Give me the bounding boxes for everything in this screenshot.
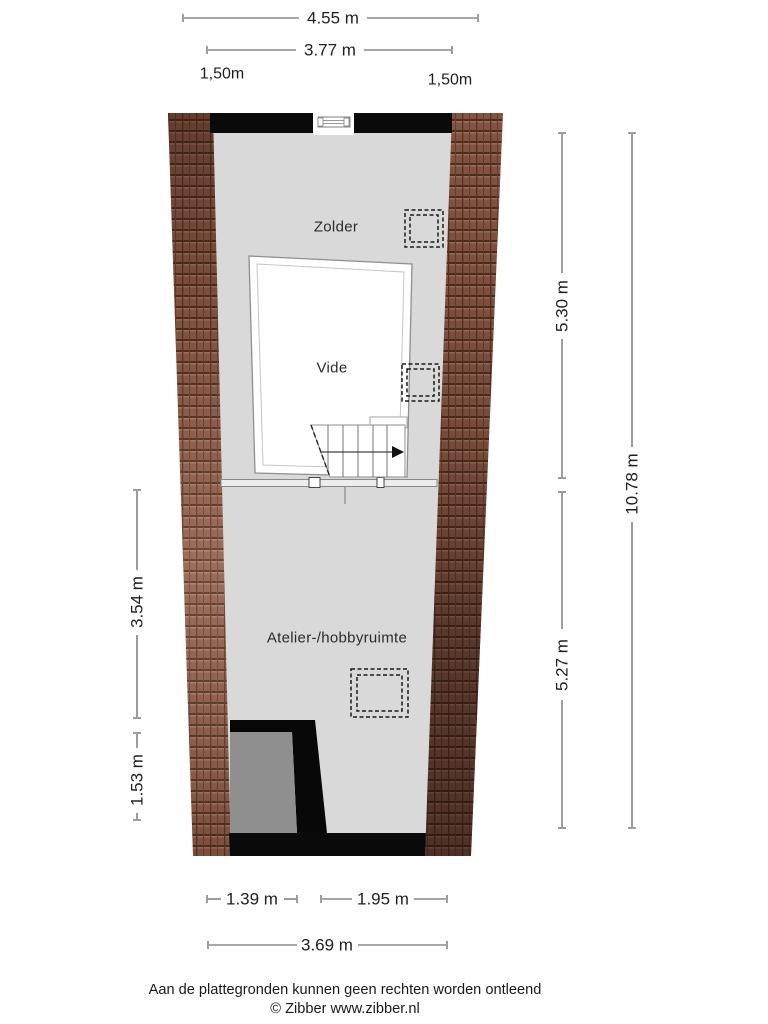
bottom-wall (229, 833, 426, 856)
dim-right-total-label: 10.78 m (623, 453, 642, 514)
dim-right-upper-label: 5.30 m (553, 280, 572, 332)
dim-left-upper-label: 3.54 m (128, 576, 147, 628)
top-wall-left (210, 113, 313, 133)
dim-left-lower: 1.53 m (128, 733, 147, 820)
dim-bottom-left: 1.39 m (207, 890, 297, 909)
dim-bottom-total-label: 3.69 m (301, 936, 353, 955)
dim-bottom-right-label: 1.95 m (357, 890, 409, 909)
floorplan: Zolder Vide Atelier-/hobbyruimte (168, 111, 503, 856)
dim-top-inner-label: 3.77 m (304, 41, 356, 60)
dim-left-lower-label: 1.53 m (128, 754, 147, 806)
dim-top-outer: 4.55 m (183, 9, 478, 28)
footer-disclaimer: Aan de plattegronden kunnen geen rechten… (149, 982, 542, 998)
knee-height-left-label: 1,50m (200, 66, 244, 83)
dim-right-lower-label: 5.27 m (553, 639, 572, 691)
room-label-atelier: Atelier-/hobbyruimte (267, 630, 407, 647)
dim-top-outer-label: 4.55 m (307, 9, 359, 28)
dim-right-total: 10.78 m (623, 133, 642, 828)
dim-bottom-left-label: 1.39 m (226, 890, 278, 909)
knee-height-right-label: 1,50m (428, 72, 472, 89)
floorplan-page: Zolder Vide Atelier-/hobbyruimte 4.55 m … (0, 0, 768, 1024)
footer-copyright: © Zibber www.zibber.nl (270, 1001, 419, 1017)
room-label-zolder: Zolder (314, 219, 358, 236)
dim-right-lower: 5.27 m (553, 492, 572, 828)
dim-left-upper: 3.54 m (128, 490, 147, 718)
top-window (313, 111, 354, 135)
dim-bottom-total: 3.69 m (208, 936, 447, 955)
footer: Aan de plattegronden kunnen geen rechten… (149, 982, 542, 1017)
storage-room-floor (230, 732, 297, 833)
dim-right-upper: 5.30 m (553, 133, 572, 478)
dim-top-inner: 3.77 m (207, 41, 452, 60)
floorplan-canvas: Zolder Vide Atelier-/hobbyruimte 4.55 m … (0, 0, 768, 1024)
dim-bottom-right: 1.95 m (321, 890, 447, 909)
room-label-vide: Vide (317, 360, 348, 377)
top-wall-right (354, 113, 452, 133)
